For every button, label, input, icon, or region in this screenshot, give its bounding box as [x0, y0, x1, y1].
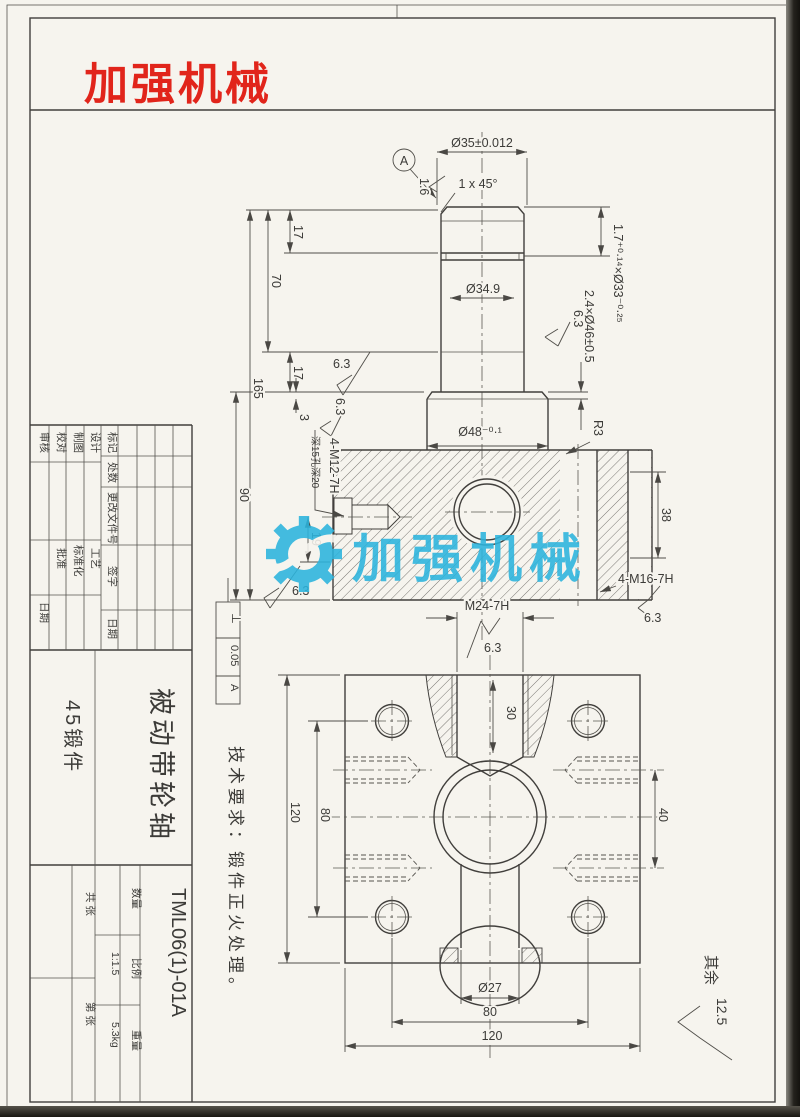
company-logo: 加强机械 [84, 48, 272, 112]
gdt-tolerance: 0.05 [228, 645, 240, 666]
dim-38: 38 [659, 508, 673, 522]
bottom-view-dimensions: 30 40 80 120 Ø27 80 120 [278, 675, 670, 1052]
side-tapped-holes [333, 757, 664, 881]
rev-header-file: 更改文件号 [106, 492, 119, 545]
dim-17-top: 17 [291, 225, 305, 239]
dim-70: 70 [269, 274, 283, 288]
datum-label: A [400, 154, 409, 168]
callout-m12-note: 深15孔深20 [309, 436, 321, 489]
callout-m12: 4-M12-7H [327, 438, 341, 494]
finish-6-3-m16: 6.3 [644, 611, 661, 625]
gdt-datum: A [228, 684, 240, 692]
scan-edge-bottom [0, 1106, 800, 1117]
role-approve: 批准 [55, 548, 68, 569]
dim-120-bottom: 120 [482, 1029, 503, 1043]
dim-dia35: Ø35±0.012 [451, 136, 513, 150]
role-audit: 审核 [38, 432, 51, 453]
drawing-sheet: 标记 处数 更改文件号 签字 日期 设计 制图 校对 审核 工艺 标准化 批准 … [0, 0, 800, 1117]
finish-6-3-groove: 6.3 [571, 310, 585, 327]
role-process: 工艺 [89, 548, 101, 569]
finish-6-3-m12: 6.3 [333, 398, 347, 415]
role-date: 日期 [38, 602, 50, 623]
default-finish-prefix: 其余 [702, 955, 720, 985]
dim-80-left: 80 [318, 808, 332, 822]
finish-6-3-m24: 6.3 [484, 641, 501, 655]
dim-dia48: Ø48⁻⁰·¹ [458, 425, 502, 439]
dim-dia27: Ø27 [478, 981, 502, 995]
sheet-total-label: 共 张 [84, 892, 96, 916]
dim-80-bottom: 80 [483, 1005, 497, 1019]
rev-header-sign: 签字 [106, 566, 119, 587]
drawing-number: TML06(1)-01A [167, 888, 189, 1018]
front-view [322, 132, 652, 640]
dim-165: 165 [251, 378, 265, 399]
weight-value: 5.3kg [109, 1022, 121, 1048]
callout-m24: M24-7H [465, 599, 509, 613]
material-spec: 45锻件 [61, 700, 84, 774]
part-name: 被动带轮轴 [146, 688, 176, 843]
dim-groove-top: 1.7⁺⁰·¹⁴×Ø33⁻⁰·²⁵ [611, 224, 625, 323]
company-logo-text: 加强机械 [84, 60, 272, 109]
role-draw: 制图 [72, 432, 85, 453]
dim-dia349: Ø34.9 [466, 282, 500, 296]
callout-m16: 4-M16-7H [618, 572, 674, 586]
finish-6-3-bottom: 6.3 [292, 584, 309, 598]
role-standard: 标准化 [72, 545, 85, 577]
dim-120-left: 120 [288, 802, 302, 823]
sheet-no-label: 第 张 [84, 1002, 97, 1026]
rev-header-count: 处数 [106, 462, 119, 483]
dim-19: 19 [309, 532, 323, 546]
dim-3: 3 [297, 414, 311, 421]
engineering-drawing: 标记 处数 更改文件号 签字 日期 设计 制图 校对 审核 工艺 标准化 批准 … [0, 0, 800, 1117]
rev-header-date: 日期 [106, 618, 118, 639]
dim-90: 90 [237, 488, 251, 502]
scale-label: 比例 [130, 958, 143, 979]
scan-edge-right [786, 0, 800, 1117]
role-check: 校对 [55, 432, 68, 453]
dim-40: 40 [656, 808, 670, 822]
dim-r3: R3 [591, 420, 605, 436]
dim-17-mid: 17 [291, 366, 305, 380]
dim-30: 30 [504, 706, 518, 720]
default-finish: 其余 12.5 [678, 955, 732, 1060]
tech-requirements: 技术要求：锻件正火处理。 [226, 746, 245, 998]
role-design: 设计 [89, 432, 102, 453]
rev-header-mark: 标记 [106, 432, 118, 453]
title-block: 标记 处数 更改文件号 签字 日期 设计 制图 校对 审核 工艺 标准化 批准 … [30, 425, 192, 1102]
scale-value: 1:1.5 [109, 952, 121, 976]
gdt-symbol: ⊥ [229, 613, 243, 624]
title-block-labels: 标记 处数 更改文件号 签字 日期 设计 制图 校对 审核 工艺 标准化 批准 … [38, 432, 189, 1052]
qty-label: 数量 [130, 888, 143, 909]
finish-6-3-left: 6.3 [333, 357, 350, 371]
default-finish-value: 12.5 [714, 998, 730, 1025]
finish-1-6: 1.6 [417, 178, 431, 195]
weight-label: 重量 [130, 1030, 143, 1052]
dim-chamfer: 1 x 45° [458, 177, 497, 191]
